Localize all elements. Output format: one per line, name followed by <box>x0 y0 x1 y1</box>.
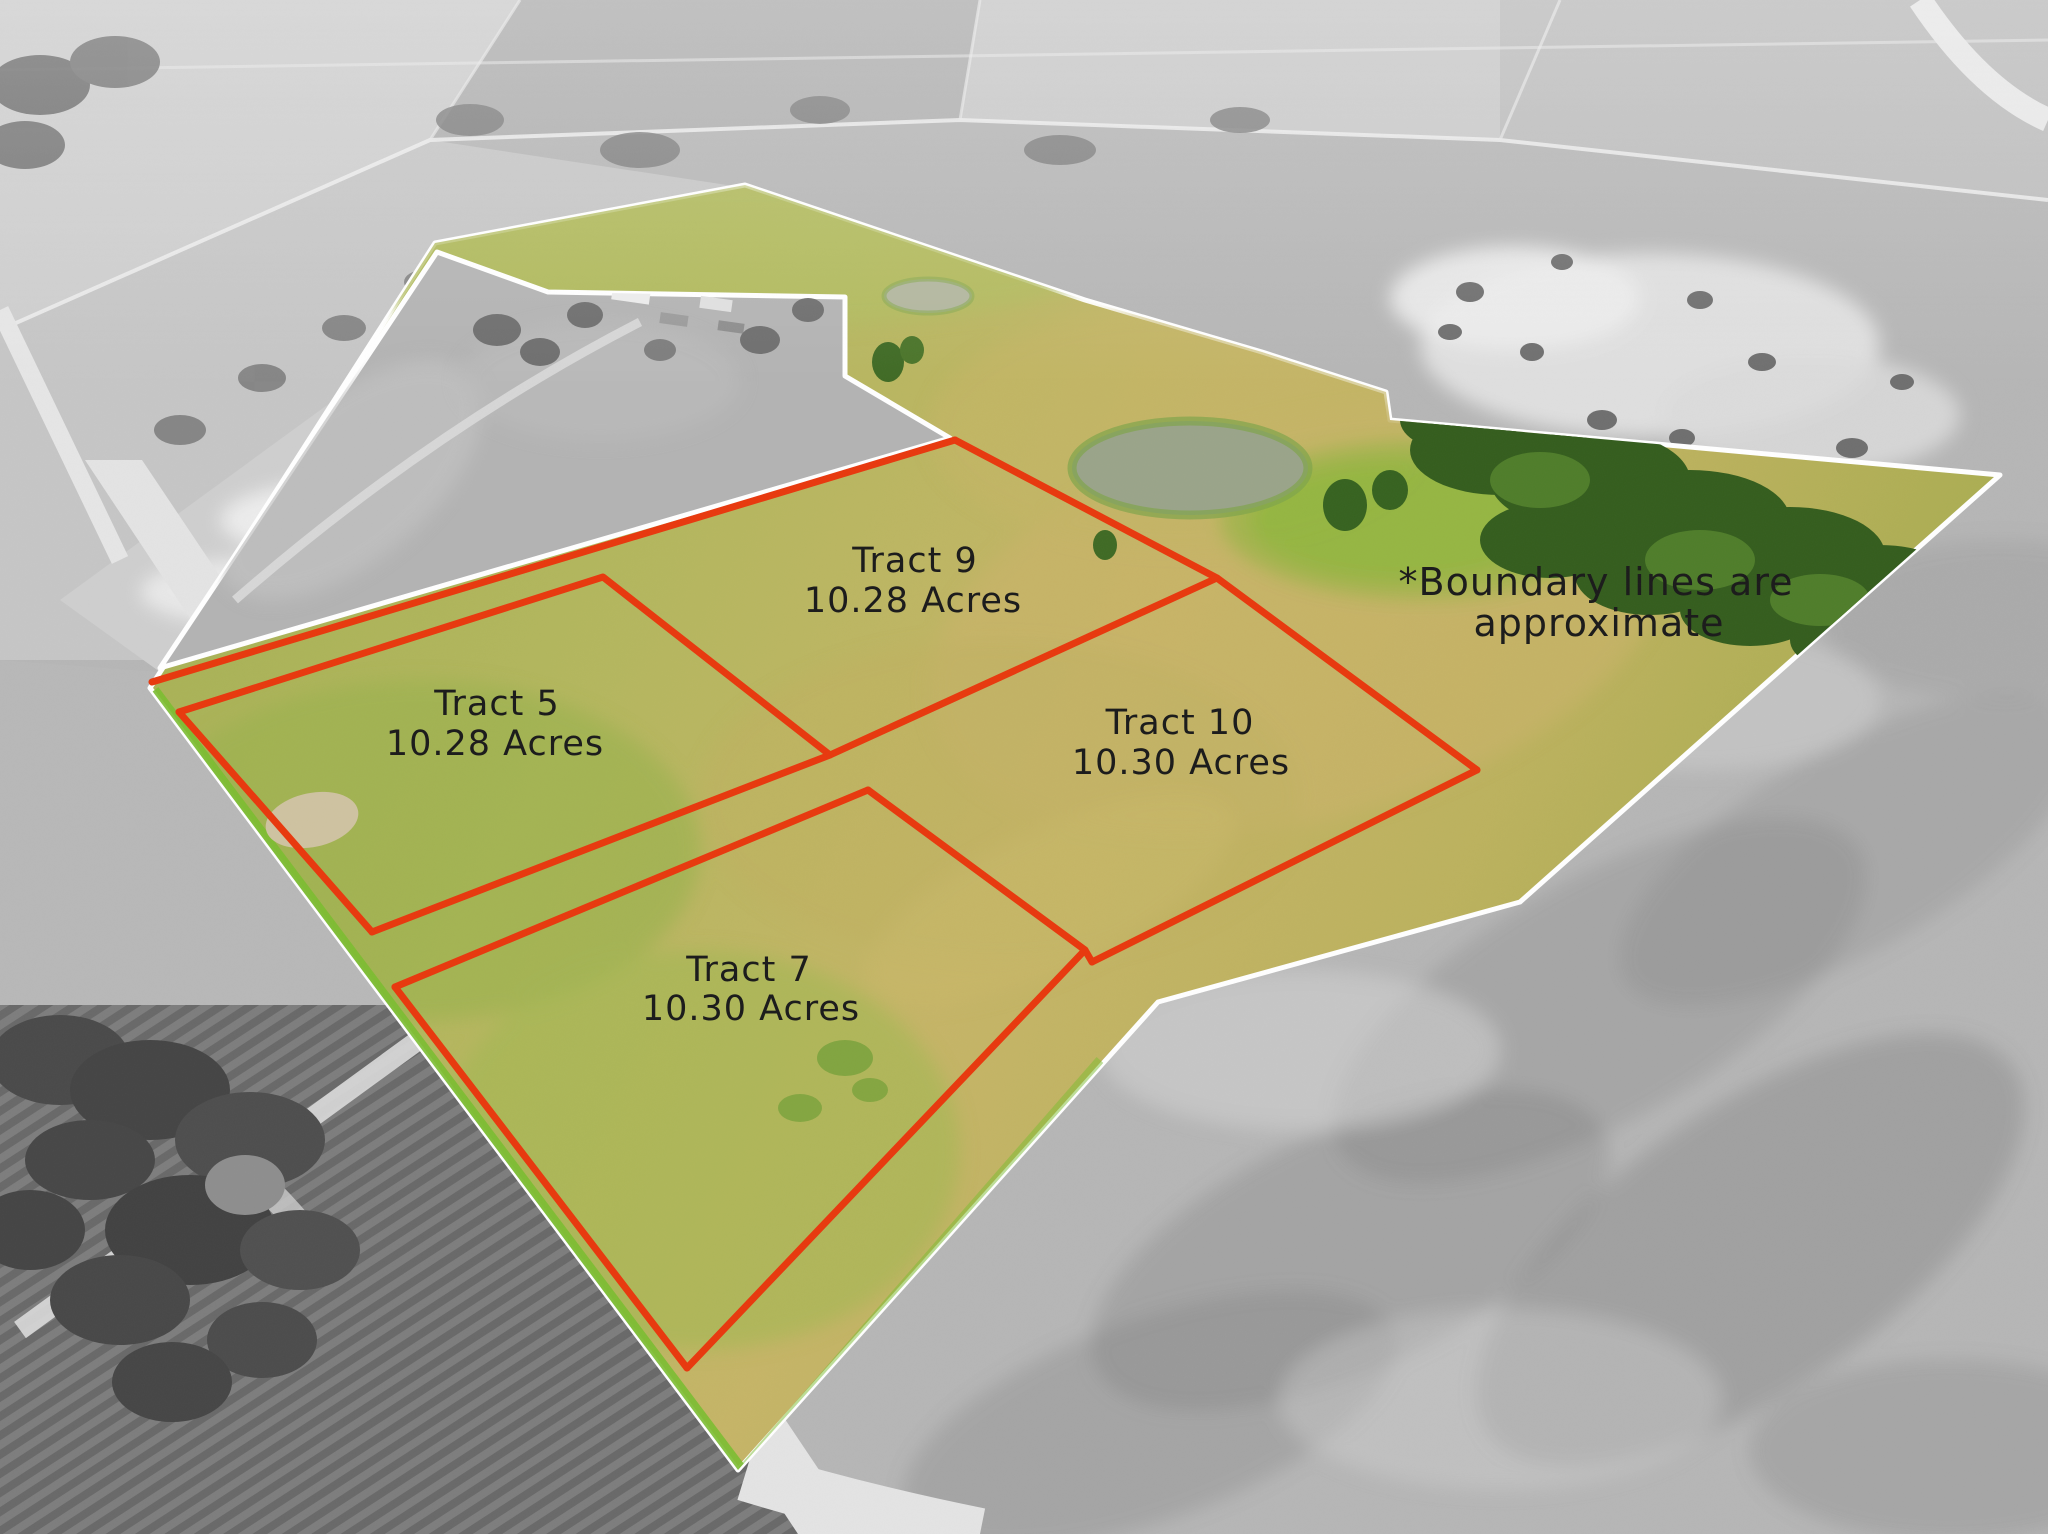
farm-pond-gray <box>205 1155 285 1215</box>
tract-7-name: Tract 7 <box>685 950 811 990</box>
tract-10-acres: 10.30 Acres <box>1072 743 1290 783</box>
note-line-2: approximate <box>1473 601 1724 645</box>
aerial-property-map: Tract 9 10.28 Acres Tract 5 10.28 Acres … <box>0 0 2048 1534</box>
aerial-photo-canvas: Tract 9 10.28 Acres Tract 5 10.28 Acres … <box>0 0 2048 1534</box>
tract-9-name: Tract 9 <box>851 541 977 581</box>
tract-7-acres: 10.30 Acres <box>642 989 860 1029</box>
tract-9-acres: 10.28 Acres <box>804 581 1022 621</box>
tract-10-name: Tract 10 <box>1105 703 1255 743</box>
tract-5-name: Tract 5 <box>433 684 559 724</box>
tract-5-acres: 10.28 Acres <box>386 724 604 764</box>
note-line-1: *Boundary lines are <box>1399 560 1794 604</box>
